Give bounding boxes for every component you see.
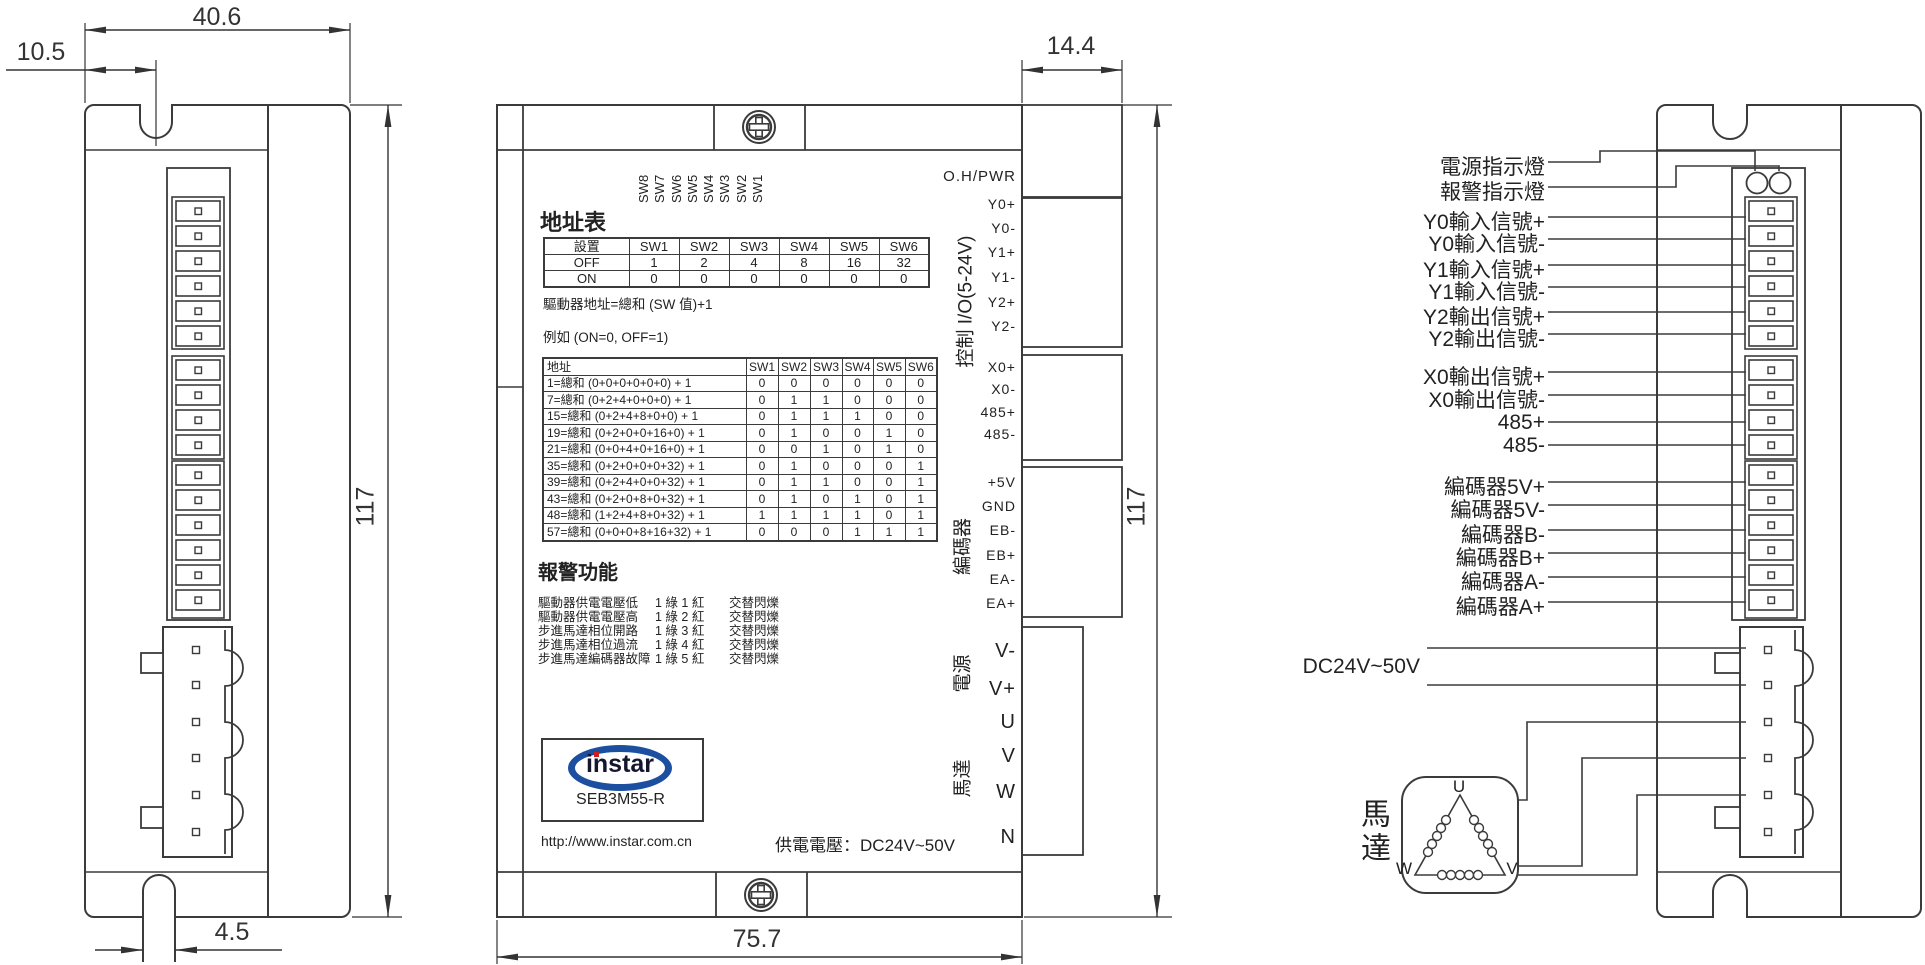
- pin-ea-minus: EA-: [896, 571, 1016, 587]
- table-cell: 1: [778, 491, 810, 508]
- address-table-title: 地址表: [540, 205, 606, 237]
- pin-eb-minus: EB-: [896, 522, 1016, 538]
- alarm-row: 驅動器供電電壓低 1 綠 1 紅 交替閃爍: [538, 596, 779, 610]
- table-cell: 0: [746, 491, 778, 508]
- table-row: 地址SW1SW2SW3SW4SW5SW6: [543, 358, 937, 375]
- pin-485-plus: 485+: [896, 404, 1016, 420]
- table-cell: 0: [746, 441, 778, 458]
- address-table: 設置SW1SW2SW3SW4SW5SW6OFF12481632ON000000: [543, 237, 930, 288]
- pin-gnd: GND: [896, 498, 1016, 514]
- wire-485-plus: 485+: [1235, 411, 1545, 435]
- pin-y1-plus: Y1+: [896, 244, 1016, 260]
- pin-x0-minus: X0-: [896, 381, 1016, 397]
- table-cell: 0: [729, 271, 779, 288]
- alarm-mode: 交替閃爍: [729, 652, 779, 666]
- table-cell: 19=總和 (0+2+0+0+16+0) + 1: [543, 425, 746, 442]
- alarm-code: 1 綠 2 紅: [655, 610, 729, 624]
- pin-y2-plus: Y2+: [896, 294, 1016, 310]
- alarm-name: 驅動器供電電壓高: [538, 610, 655, 624]
- table-cell: 0: [778, 524, 810, 541]
- table-cell: 1: [778, 507, 810, 524]
- wire-x0-out-minus: X0輸出信號-: [1235, 384, 1545, 414]
- table-cell: SW2: [679, 238, 729, 255]
- table-cell: 21=總和 (0+0+4+0+16+0) + 1: [543, 441, 746, 458]
- dimension-wiring-diagram: 40.6 10.5 117 4.5 14.4 117 75.7 O.H/PWR …: [0, 0, 1925, 965]
- table-cell: 1: [778, 408, 810, 425]
- dim-step-front: 14.4: [1021, 32, 1121, 61]
- pin-5v: +5V: [896, 474, 1016, 490]
- motor-terminal-w: W: [1394, 859, 1414, 879]
- table-row: 21=總和 (0+0+4+0+16+0) + 1001010: [543, 441, 937, 458]
- table-cell: 8: [779, 255, 829, 271]
- table-row: 15=總和 (0+2+4+8+0+0) + 1011100: [543, 408, 937, 425]
- brand-name: instar: [568, 750, 672, 779]
- table-row: 48=總和 (1+2+4+8+0+32) + 1111101: [543, 507, 937, 524]
- table-cell: 1: [746, 507, 778, 524]
- alarm-code: 1 綠 3 紅: [655, 624, 729, 638]
- pin-v-minus: V-: [896, 640, 1016, 663]
- table-cell: 0: [810, 458, 842, 475]
- pin-y1-minus: Y1-: [896, 269, 1016, 285]
- table-cell: 1: [810, 507, 842, 524]
- table-row: 1=總和 (0+0+0+0+0+0) + 1000000: [543, 375, 937, 392]
- pin-y0-plus: Y0+: [896, 196, 1016, 212]
- table-cell: 0: [778, 375, 810, 392]
- table-cell: 1: [778, 425, 810, 442]
- table-cell: 1: [842, 507, 873, 524]
- alarm-name: 驅動器供電電壓低: [538, 596, 655, 610]
- sw-label-1: SW1: [750, 159, 764, 203]
- alarm-row: 步進馬達編碼器故障 1 綠 5 紅 交替閃爍: [538, 652, 779, 666]
- pin-v-plus: V+: [896, 678, 1016, 701]
- table-row: 39=總和 (0+2+4+0+0+32) + 1011001: [543, 474, 937, 491]
- table-cell: 4: [729, 255, 779, 271]
- alarm-name: 步進馬達編碼器故障: [538, 652, 655, 666]
- example-table: 地址SW1SW2SW3SW4SW5SW61=總和 (0+0+0+0+0+0) +…: [542, 357, 938, 542]
- status-label: O.H/PWR: [916, 168, 1016, 185]
- alarm-mode: 交替閃爍: [729, 596, 779, 610]
- table-cell: 7=總和 (0+2+4+0+0+0) + 1: [543, 392, 746, 409]
- alarm-mode: 交替閃爍: [729, 624, 779, 638]
- table-cell: 0: [746, 392, 778, 409]
- alarm-code: 1 綠 4 紅: [655, 638, 729, 652]
- table-cell: 0: [746, 524, 778, 541]
- table-cell: SW3: [729, 238, 779, 255]
- table-cell: ON: [544, 271, 629, 288]
- model-number: SEB3M55-R: [541, 791, 700, 809]
- table-cell: 0: [746, 375, 778, 392]
- wire-enc-a-plus: 編碼器A+: [1235, 591, 1545, 621]
- table-cell: 1: [810, 408, 842, 425]
- pin-485-minus: 485-: [896, 426, 1016, 442]
- dim-slot-left: 4.5: [182, 918, 282, 947]
- alarm-title: 報警功能: [538, 556, 618, 585]
- table-cell: 1: [629, 255, 679, 271]
- table-cell: 1: [778, 392, 810, 409]
- table-cell: SW2: [778, 358, 810, 375]
- table-cell: 1: [810, 392, 842, 409]
- alarm-list: 驅動器供電電壓低 1 綠 1 紅 交替閃爍 驅動器供電電壓高 1 綠 2 紅 交…: [538, 596, 779, 666]
- table-cell: 0: [810, 375, 842, 392]
- table-row: ON000000: [544, 271, 929, 288]
- dim-width-front: 75.7: [707, 925, 807, 954]
- table-cell: 0: [746, 425, 778, 442]
- table-cell: 1: [778, 458, 810, 475]
- table-cell: 0: [905, 441, 937, 458]
- sw-label-8: SW8: [636, 159, 650, 203]
- motor-terminal-u: U: [1449, 777, 1469, 797]
- pin-x0-plus: X0+: [896, 359, 1016, 375]
- alarm-code: 1 綠 5 紅: [655, 652, 729, 666]
- table-row: 57=總和 (0+0+0+8+16+32) + 1000111: [543, 524, 937, 541]
- table-cell: 0: [842, 392, 873, 409]
- sw-label-4: SW4: [701, 159, 715, 203]
- table-cell: 1: [842, 524, 873, 541]
- table-cell: 0: [810, 425, 842, 442]
- alarm-name: 步進馬達相位開路: [538, 624, 655, 638]
- table-cell: 0: [746, 458, 778, 475]
- table-cell: 39=總和 (0+2+4+0+0+32) + 1: [543, 474, 746, 491]
- table-cell: 1: [873, 441, 905, 458]
- wire-485-minus: 485-: [1235, 434, 1545, 458]
- table-cell: 1: [810, 441, 842, 458]
- table-cell: 0: [778, 441, 810, 458]
- pin-ea-plus: EA+: [896, 595, 1016, 611]
- table-cell: 35=總和 (0+2+0+0+0+32) + 1: [543, 458, 746, 475]
- table-cell: OFF: [544, 255, 629, 271]
- pin-v: V: [896, 745, 1016, 768]
- sw-label-3: SW3: [717, 159, 731, 203]
- table-cell: 設置: [544, 238, 629, 255]
- table-cell: 1: [778, 474, 810, 491]
- table-cell: 0: [779, 271, 829, 288]
- table-cell: 0: [810, 491, 842, 508]
- right-side-view: [1657, 104, 1921, 918]
- table-row: 設置SW1SW2SW3SW4SW5SW6: [544, 238, 929, 255]
- pin-y0-minus: Y0-: [896, 220, 1016, 236]
- table-cell: SW4: [842, 358, 873, 375]
- table-cell: 0: [842, 458, 873, 475]
- table-cell: 0: [810, 524, 842, 541]
- pin-y2-minus: Y2-: [896, 318, 1016, 334]
- sw-label-2: SW2: [734, 159, 748, 203]
- pin-n: N: [896, 826, 1016, 849]
- example-note: 例如 (ON=0, OFF=1): [543, 326, 668, 346]
- table-cell: 43=總和 (0+2+0+8+0+32) + 1: [543, 491, 746, 508]
- table-cell: 0: [842, 425, 873, 442]
- alarm-row: 步進馬達相位過流 1 綠 4 紅 交替閃爍: [538, 638, 779, 652]
- sw-label-5: SW5: [685, 159, 699, 203]
- bottom-screw-icon: [745, 879, 777, 911]
- dim-height-left: 117: [352, 477, 381, 537]
- left-side-view: [85, 104, 350, 962]
- table-cell: 0: [842, 474, 873, 491]
- table-cell: 0: [842, 441, 873, 458]
- table-cell: 1=總和 (0+0+0+0+0+0) + 1: [543, 375, 746, 392]
- table-cell: 0: [746, 408, 778, 425]
- alarm-row: 步進馬達相位開路 1 綠 3 紅 交替閃爍: [538, 624, 779, 638]
- table-cell: 地址: [543, 358, 746, 375]
- logo-dot-icon: [594, 752, 599, 757]
- table-cell: 57=總和 (0+0+0+8+16+32) + 1: [543, 524, 746, 541]
- pin-w: W: [896, 781, 1016, 804]
- table-cell: 16: [829, 255, 879, 271]
- wire-y2-out-minus: Y2輸出信號-: [1235, 323, 1545, 353]
- dim-width-left: 40.6: [167, 3, 267, 32]
- pin-u: U: [896, 711, 1016, 734]
- table-cell: 0: [873, 458, 905, 475]
- table-cell: 2: [679, 255, 729, 271]
- sw-label-6: SW6: [669, 159, 683, 203]
- alarm-code: 1 綠 1 紅: [655, 596, 729, 610]
- pin-eb-plus: EB+: [896, 547, 1016, 563]
- motor-label: 馬達: [1350, 798, 1394, 866]
- table-cell: 48=總和 (1+2+4+8+0+32) + 1: [543, 507, 746, 524]
- table-cell: 0: [829, 271, 879, 288]
- table-cell: 1: [842, 491, 873, 508]
- wire-dc-supply: DC24V~50V: [1270, 655, 1420, 679]
- dim-offset-left: 10.5: [1, 38, 81, 67]
- table-row: 19=總和 (0+2+0+0+16+0) + 1010010: [543, 425, 937, 442]
- table-cell: SW5: [829, 238, 879, 255]
- motor-terminal-v: V: [1502, 859, 1522, 879]
- address-note: 驅動器地址=總和 (SW 值)+1: [543, 293, 713, 313]
- sw-label-7: SW7: [652, 159, 666, 203]
- table-row: 7=總和 (0+2+4+0+0+0) + 1011000: [543, 392, 937, 409]
- table-row: 43=總和 (0+2+0+8+0+32) + 1010101: [543, 491, 937, 508]
- table-cell: 0: [842, 375, 873, 392]
- wire-alarm-led: 報警指示燈: [1235, 176, 1545, 206]
- table-cell: 0: [746, 474, 778, 491]
- table-cell: SW4: [779, 238, 829, 255]
- table-cell: 0: [679, 271, 729, 288]
- table-row: 35=總和 (0+2+0+0+0+32) + 1010001: [543, 458, 937, 475]
- table-cell: 1: [842, 408, 873, 425]
- table-cell: SW3: [810, 358, 842, 375]
- top-screw-icon: [743, 111, 775, 143]
- alarm-mode: 交替閃爍: [729, 638, 779, 652]
- table-cell: SW1: [629, 238, 679, 255]
- alarm-mode: 交替閃爍: [729, 610, 779, 624]
- alarm-row: 驅動器供電電壓高 1 綠 2 紅 交替閃爍: [538, 610, 779, 624]
- table-cell: SW1: [746, 358, 778, 375]
- table-cell: 1: [810, 474, 842, 491]
- alarm-name: 步進馬達相位過流: [538, 638, 655, 652]
- dim-height-front: 117: [1123, 477, 1152, 537]
- table-row: OFF12481632: [544, 255, 929, 271]
- table-cell: 0: [629, 271, 679, 288]
- table-cell: 15=總和 (0+2+4+8+0+0) + 1: [543, 408, 746, 425]
- table-cell: 1: [905, 458, 937, 475]
